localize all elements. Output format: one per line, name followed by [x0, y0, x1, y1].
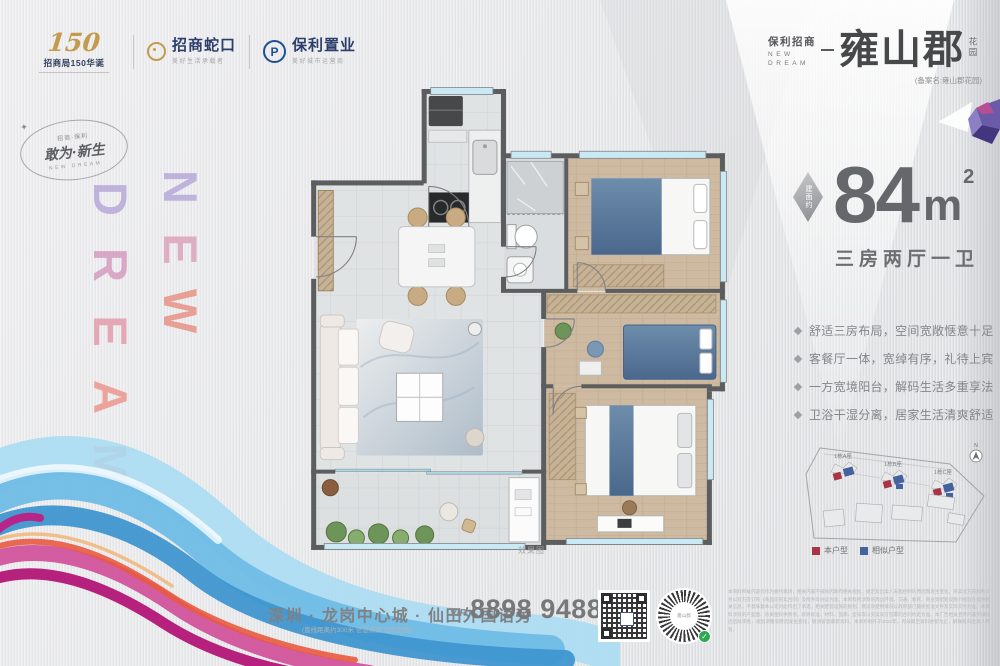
legend-blue-swatch	[860, 547, 868, 555]
site-plan-legend: 本户型 相似户型	[812, 545, 904, 556]
header-brand-cn: 保利招商	[768, 34, 816, 49]
feature-item: 一方宽境阳台，解码生活多重享法	[795, 378, 995, 395]
vip-label: VIP	[450, 608, 466, 619]
area-block: 建面约 84 m 2 三房两厅一卫	[793, 158, 998, 271]
vertical-new-word: N E W	[152, 156, 210, 342]
brand-bar: 150 招商局150华诞 招商蛇口 美好生活承载者 P 保利置业 美好城市运营商	[28, 30, 356, 73]
feature-item: 卫浴干湿分离，居家生活清爽舒适	[795, 406, 995, 423]
qr-code-icon	[598, 590, 650, 642]
feature-item: 舒适三房布局，空间宽敞惬意十足	[795, 322, 995, 339]
feature-text: 卫浴干湿分离，居家生活清爽舒适	[809, 406, 994, 423]
site-plan: 1栋A座 1栋B座 1栋C座 N	[800, 436, 990, 554]
area-unit: m	[923, 184, 962, 232]
poly-tagline: 美好城市运营商	[292, 56, 356, 65]
poly-name: 保利置业	[292, 38, 356, 55]
anniversary-rule	[39, 72, 109, 73]
diamond-bullet-icon	[794, 326, 802, 334]
logo-divider	[133, 35, 134, 69]
art-letter: A	[78, 368, 144, 426]
project-title: 雍山郡	[839, 30, 965, 70]
art-letter: R	[78, 236, 144, 294]
amenity-blocks	[823, 494, 965, 527]
legend-red-swatch	[812, 547, 820, 555]
check-icon: ✓	[698, 630, 711, 643]
feature-item: 客餐厅一体，宽绰有序，礼待上宾	[795, 350, 995, 367]
feature-text: 舒适三房布局，空间宽敞惬意十足	[809, 322, 994, 339]
diamond-bullet-icon	[794, 410, 802, 418]
header-brand-en2: DREAM	[768, 60, 816, 67]
feature-text: 客餐厅一体，宽绰有序，礼待上宾	[809, 350, 994, 367]
header-brand-en1: NEW	[768, 51, 816, 58]
filing-name: (备案名:雍山郡花园)	[768, 75, 990, 86]
phone-number: 8898 9488	[470, 596, 602, 623]
cmsk-logo: 招商蛇口 美好生活承载者	[147, 38, 236, 66]
building-label: 1栋C座	[934, 468, 953, 476]
poly-logo: P 保利置业 美好城市运营商	[263, 38, 356, 66]
cmsk-name: 招商蛇口	[172, 38, 236, 55]
header-dash	[821, 49, 834, 51]
project-title-suffix: 花园	[967, 37, 979, 63]
header-brand: 保利招商 NEW DREAM	[768, 34, 816, 67]
project-header: 保利招商 NEW DREAM 雍山郡 花园 (备案名:雍山郡花园)	[768, 30, 990, 86]
legal-disclaimer: 本资料所载内容仅作为要约邀请，相关内容不排除因政府相关规划、规定及出卖人未能控制…	[728, 588, 990, 650]
wechat-qr-center-label: 雍山郡	[670, 602, 698, 630]
feature-text: 一方宽境阳台，解码生活多重享法	[809, 378, 994, 395]
cmsk-tagline: 美好生活承载者	[172, 56, 236, 65]
art-letter: E	[78, 302, 144, 360]
building-cluster-a: 1栋A座	[831, 452, 857, 481]
area-badge-text: 建面约	[803, 185, 813, 209]
poster: 150 招商局150华诞 招商蛇口 美好生活承载者 P 保利置业 美好城市运营商…	[0, 0, 1000, 666]
gem-icon	[936, 94, 1000, 160]
address-note: (直线距离约300米 信息来源:百度地图)	[302, 624, 412, 634]
diamond-bullet-icon	[794, 354, 802, 362]
building-cluster-b: 1栋B座	[881, 460, 907, 489]
art-letter: E	[150, 220, 212, 278]
sparkle-icon: ✦	[20, 122, 29, 134]
area-badge-diamond: 建面约	[793, 172, 823, 222]
feature-list: 舒适三房布局，空间宽敞惬意十足 客餐厅一体，宽绰有序，礼待上宾 一方宽境阳台，解…	[795, 322, 995, 434]
art-letter: W	[150, 282, 212, 340]
room-layout: 三房两厅一卫	[835, 244, 998, 271]
poly-p-icon: P	[263, 40, 286, 63]
legend-label-similar-unit: 相似户型	[872, 545, 904, 556]
logo-divider	[249, 35, 250, 69]
diamond-bullet-icon	[794, 382, 802, 390]
gold-ring-icon	[147, 42, 166, 61]
north-label: N	[974, 443, 978, 449]
building-label: 1栋A座	[834, 452, 852, 460]
legend-label-this-unit: 本户型	[824, 545, 848, 556]
anniversary-label: 招商局150华诞	[28, 57, 120, 69]
building-label: 1栋B座	[884, 460, 902, 468]
anniversary-logo: 150 招商局150华诞	[28, 30, 120, 73]
north-arrow-icon: N	[970, 443, 982, 462]
anniversary-number: 150	[27, 30, 122, 55]
area-superscript: 2	[963, 166, 974, 189]
art-letter: N	[150, 158, 212, 216]
wechat-qr-code-icon: 雍山郡 ✓	[656, 588, 712, 644]
area-value: 84	[833, 158, 918, 232]
building-cluster-c: 1栋C座	[931, 468, 957, 498]
art-letter: D	[78, 170, 144, 228]
